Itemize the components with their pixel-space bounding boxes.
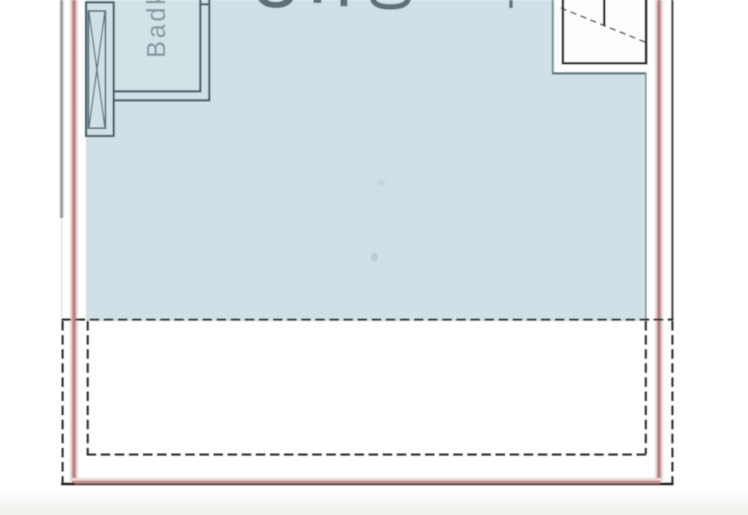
svg-text:4: 4 (312, 0, 358, 24)
svg-text:3: 3 (253, 0, 299, 25)
svg-text:Badkamer: Badkamer (143, 0, 171, 58)
